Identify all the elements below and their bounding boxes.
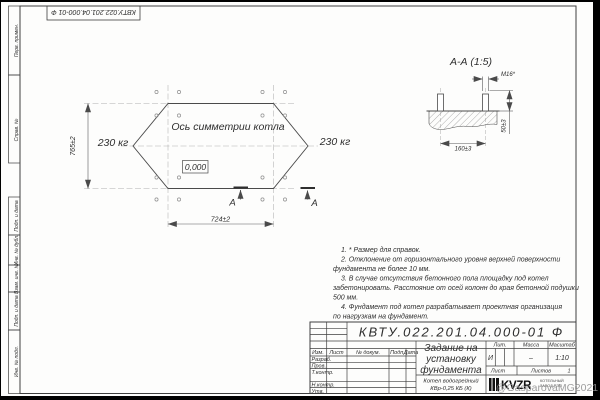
axis-of-symmetry-label: Ось симметрии котла: [171, 121, 284, 133]
col-izm: Изм.: [312, 350, 324, 356]
weight-right-label: 230 кг: [319, 136, 351, 148]
note-line: 500 мм.: [333, 295, 358, 302]
row-tkontr: Т.контр.: [312, 370, 334, 376]
scale-header: Масштаб: [549, 343, 576, 349]
note-line: 3. В случае отсутствия бетонного пола пл…: [341, 275, 549, 283]
row-utv: Утв.: [311, 389, 325, 395]
plan-centerlines: [84, 85, 318, 228]
row-prov: Пров.: [312, 363, 327, 369]
screenshot-root: { "doc": { "number_top": "КВТУ.022.201.0…: [0, 0, 600, 400]
doc-title-line1: Задание на: [424, 343, 478, 354]
side-stamp-inv-dubl: Инв. № дубл.: [14, 235, 20, 266]
side-stamp-vzam-inv: Взам. инв. №: [14, 262, 20, 294]
dim-width-label: 724±2: [211, 217, 231, 224]
mass-header: Масса: [523, 343, 539, 349]
note-line: фундамента не более 10 мм.: [333, 265, 430, 273]
section-dim-height-label: 50±3: [502, 119, 508, 133]
section-letter-left: А: [228, 198, 235, 209]
note-line: 1. * Размер для справок.: [341, 246, 421, 254]
sheets-value: 1: [567, 369, 570, 375]
section-title: А-А (1:5): [449, 56, 492, 68]
product-name-line1: Котел водогрейный: [423, 378, 479, 385]
section-letter-right: А: [310, 198, 317, 209]
side-stamp-sprav: Справ. №: [14, 118, 20, 141]
note-line: 2. Отклонение от горизонтального уровня …: [340, 256, 560, 264]
row-razrab: Разраб.: [312, 357, 332, 363]
notes-block: 1. * Размер для справок. 2. Отклонение о…: [332, 246, 579, 321]
col-list: Лист: [328, 350, 344, 356]
note-line: забетонировать. Расстояние от осей колон…: [332, 284, 579, 292]
anchor-bolts: [438, 94, 489, 111]
lit-header: Лит.: [493, 343, 507, 349]
sheet-label: Лист: [490, 369, 506, 375]
doc-number-main: КВТУ.022.201.04.000-01 Ф: [359, 325, 564, 340]
section-dim-spacing-label: 160±3: [455, 147, 472, 153]
col-podp: Подп.: [390, 350, 405, 356]
doc-title-line3: фундамента: [420, 364, 482, 376]
weight-left-label: 230 кг: [97, 137, 129, 149]
mass-value: –: [528, 355, 533, 362]
section-cut-marks: [234, 188, 316, 200]
elevation-value: 0,000: [185, 162, 207, 172]
lit-value: И: [488, 355, 494, 362]
side-stamp-boxes: [9, 6, 21, 394]
drawing-canvas: Перв. примен. Справ. № Подп. и дата Инв.…: [0, 0, 600, 400]
side-stamp-podp-data-2: Подп. и дата: [14, 295, 20, 327]
doc-number-top: КВТУ.022.201.04.000-01 Ф: [51, 8, 136, 15]
product-name-line2: КВр-0,25 КБ (К): [430, 386, 471, 392]
note-line: по нагрузкам на фундамент.: [333, 313, 429, 321]
doc-title-line2: установку: [425, 354, 477, 365]
watermark-text: @GasparovaMG2021: [496, 382, 598, 394]
col-docnum: № докум.: [356, 350, 380, 356]
row-nkontr: Н.контр.: [312, 383, 335, 389]
concrete-hatch: [429, 111, 497, 130]
side-stamp-podp-data-1: Подп. и дата: [14, 200, 20, 232]
note-line: 4. Фундамент под котел разрабатывает про…: [341, 303, 562, 311]
col-data: Дата: [403, 350, 419, 356]
dim-height-label: 765±2: [70, 136, 77, 156]
side-stamp-inv-podl: Инв. № подл.: [14, 346, 20, 377]
bolt-size-label: М16*: [501, 72, 516, 78]
sheets-label: Листов: [530, 369, 551, 375]
side-stamp-perv-primen: Перв. примен.: [14, 24, 20, 57]
scale-value: 1:10: [555, 355, 569, 362]
